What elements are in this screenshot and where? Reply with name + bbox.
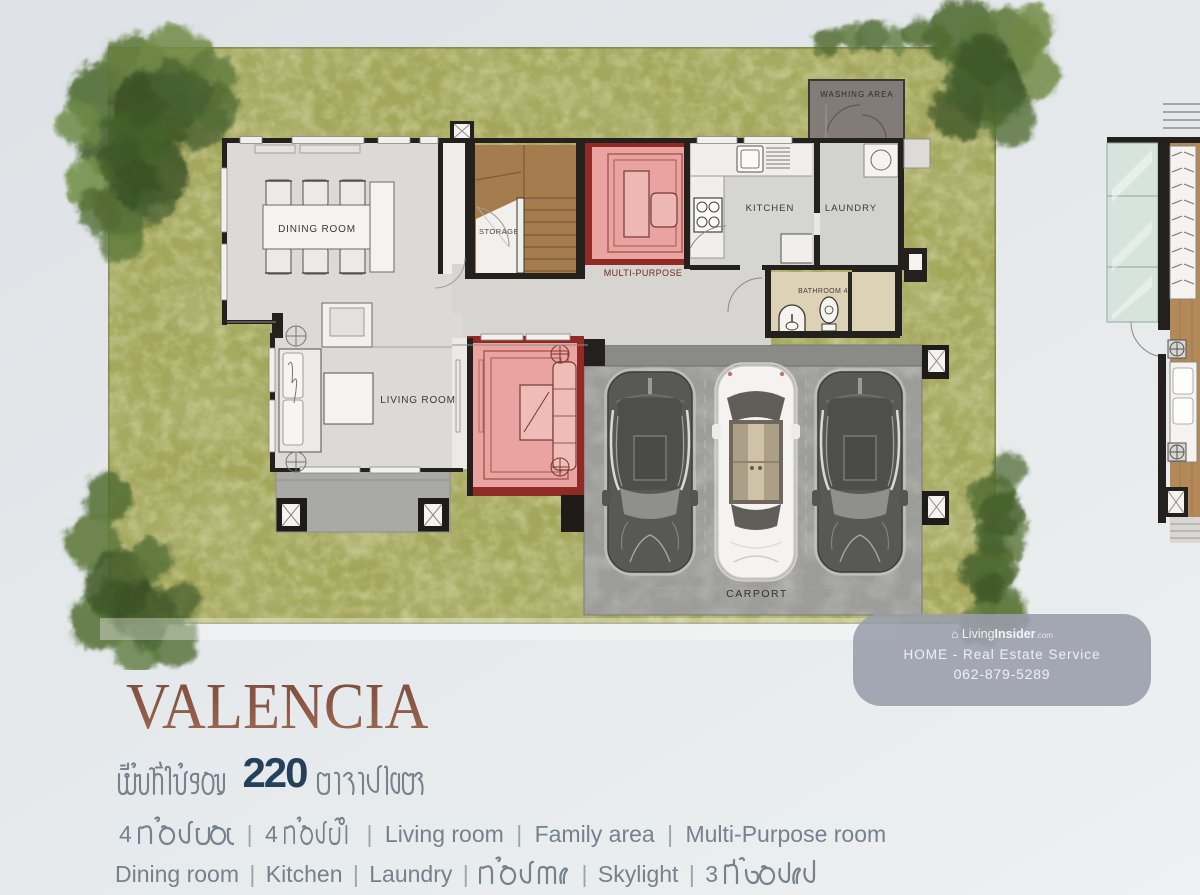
svg-text:MULTI-PURPOSE: MULTI-PURPOSE (604, 268, 683, 278)
svg-text:BATHROOM 4: BATHROOM 4 (798, 288, 848, 295)
svg-text:LIVING ROOM: LIVING ROOM (380, 395, 455, 406)
svg-text:STORAGE: STORAGE (479, 227, 519, 236)
svg-text:LAUNDRY: LAUNDRY (825, 203, 877, 214)
svg-text:DINING ROOM: DINING ROOM (278, 224, 356, 235)
svg-text:WASHING AREA: WASHING AREA (820, 90, 894, 99)
svg-text:CARPORT: CARPORT (726, 588, 788, 600)
svg-text:KITCHEN: KITCHEN (746, 203, 795, 214)
